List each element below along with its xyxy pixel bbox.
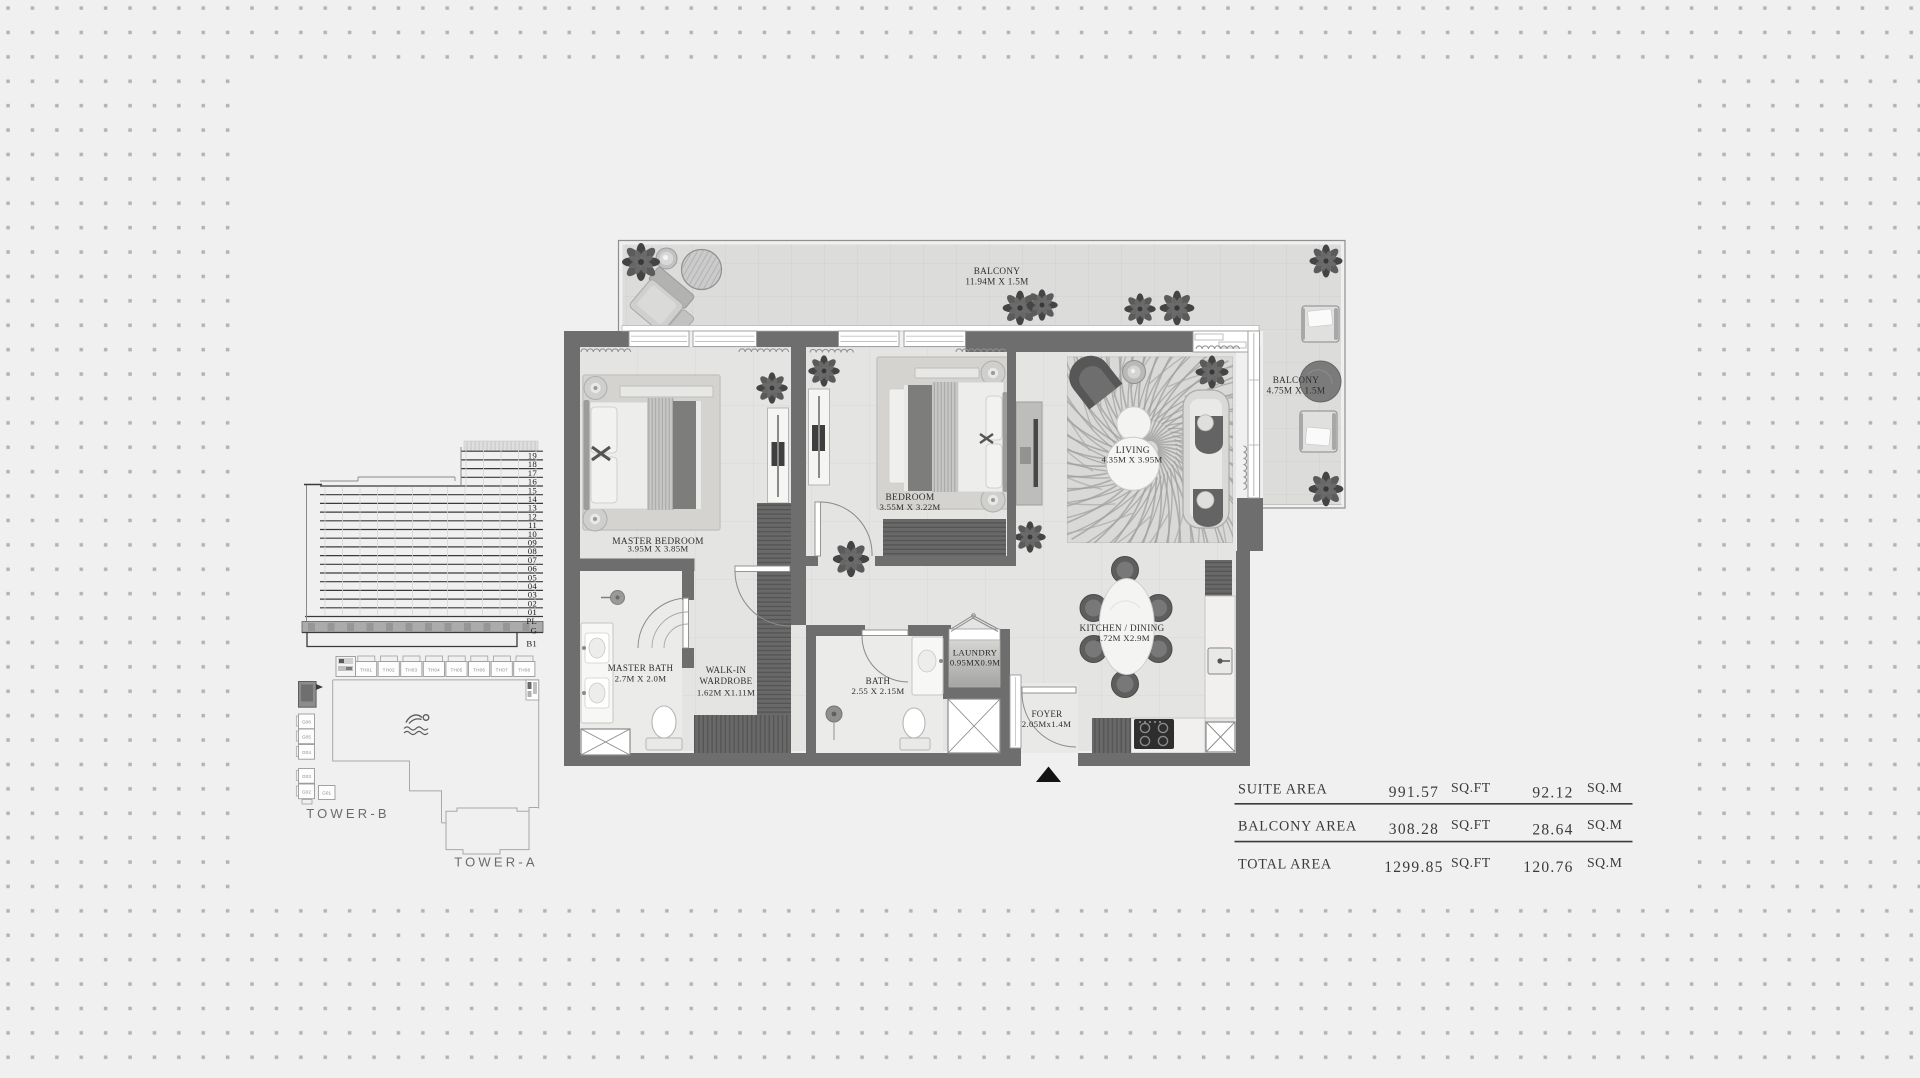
- svg-text:1299.85: 1299.85: [1384, 859, 1443, 876]
- svg-text:PL: PL: [526, 616, 537, 626]
- svg-text:3.95M X 3.85M: 3.95M X 3.85M: [627, 544, 688, 554]
- svg-text:92.12: 92.12: [1532, 785, 1573, 802]
- svg-text:2.05Mx1.4M: 2.05Mx1.4M: [1022, 719, 1071, 729]
- svg-text:B1: B1: [526, 639, 537, 649]
- svg-text:MASTER BATH: MASTER BATH: [608, 663, 674, 673]
- svg-text:1.62M X1.11M: 1.62M X1.11M: [697, 688, 755, 698]
- svg-text:TH07: TH07: [496, 668, 508, 673]
- svg-text:4.75M X 1.5M: 4.75M X 1.5M: [1267, 386, 1326, 396]
- svg-text:TH01: TH01: [360, 668, 372, 673]
- svg-text:LAUNDRY: LAUNDRY: [953, 648, 998, 658]
- svg-text:TH05: TH05: [450, 668, 462, 673]
- svg-text:TH08: TH08: [518, 668, 530, 673]
- svg-text:3.55M X 3.22M: 3.55M X 3.22M: [879, 502, 940, 512]
- svg-text:TH02: TH02: [383, 668, 395, 673]
- svg-text:FOYER: FOYER: [1031, 709, 1062, 719]
- svg-text:120.76: 120.76: [1523, 859, 1573, 876]
- svg-text:SQ.FT: SQ.FT: [1451, 780, 1491, 795]
- svg-text:TH04: TH04: [428, 668, 440, 673]
- svg-text:KITCHEN / DINING: KITCHEN / DINING: [1080, 623, 1165, 633]
- svg-text:SQ.M: SQ.M: [1587, 817, 1622, 832]
- svg-text:BALCONY: BALCONY: [974, 266, 1021, 276]
- svg-text:SUITE AREA: SUITE AREA: [1238, 782, 1328, 798]
- svg-text:308.28: 308.28: [1389, 821, 1439, 838]
- svg-text:0.95MX0.9M: 0.95MX0.9M: [950, 658, 1000, 668]
- svg-text:BATH: BATH: [866, 676, 891, 686]
- svg-text:TOTAL AREA: TOTAL AREA: [1238, 857, 1332, 873]
- svg-text:2.55 X 2.15M: 2.55 X 2.15M: [852, 686, 905, 696]
- svg-text:WARDROBE: WARDROBE: [700, 676, 753, 686]
- svg-text:TH03: TH03: [405, 668, 417, 673]
- svg-text:G04: G04: [302, 750, 311, 755]
- svg-text:SQ.FT: SQ.FT: [1451, 817, 1491, 832]
- svg-text:G06: G06: [302, 720, 311, 725]
- svg-text:BALCONY: BALCONY: [1273, 375, 1320, 385]
- svg-text:G02: G02: [302, 790, 311, 795]
- svg-text:SQ.FT: SQ.FT: [1451, 855, 1491, 870]
- svg-text:WALK-IN: WALK-IN: [706, 665, 747, 675]
- svg-text:TOWER-A: TOWER-A: [454, 855, 538, 870]
- svg-text:28.64: 28.64: [1532, 822, 1573, 839]
- svg-text:11.94M X 1.5M: 11.94M X 1.5M: [965, 277, 1028, 287]
- svg-text:G05: G05: [302, 735, 311, 740]
- svg-text:G: G: [530, 626, 537, 636]
- svg-text:SQ.M: SQ.M: [1587, 855, 1622, 870]
- svg-text:3.72M X2.9M: 3.72M X2.9M: [1096, 633, 1150, 643]
- svg-text:4.35M X 3.95M: 4.35M X 3.95M: [1101, 455, 1162, 465]
- svg-text:BALCONY AREA: BALCONY AREA: [1238, 819, 1357, 835]
- svg-text:G01: G01: [322, 791, 331, 796]
- svg-text:G03: G03: [302, 774, 311, 779]
- svg-text:TOWER-B: TOWER-B: [306, 806, 390, 821]
- svg-text:991.57: 991.57: [1389, 784, 1439, 801]
- svg-text:SQ.M: SQ.M: [1587, 780, 1622, 795]
- svg-text:TH06: TH06: [473, 668, 485, 673]
- svg-text:2.7M X 2.0M: 2.7M X 2.0M: [615, 674, 667, 684]
